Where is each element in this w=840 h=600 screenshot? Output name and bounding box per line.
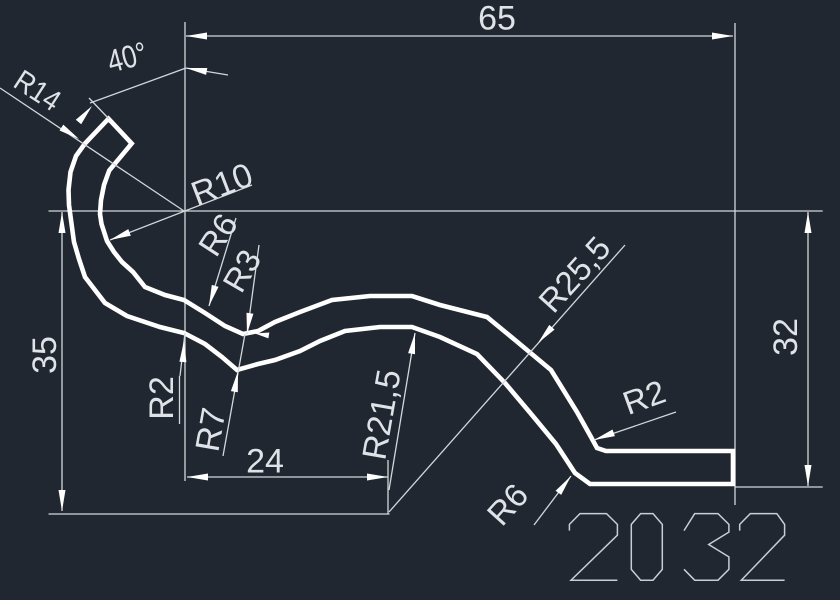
- svg-text:R7: R7: [189, 405, 234, 454]
- svg-text:32: 32: [767, 318, 805, 356]
- svg-text:R2: R2: [143, 376, 181, 419]
- svg-text:65: 65: [478, 0, 516, 38]
- svg-text:24: 24: [246, 443, 284, 481]
- svg-text:35: 35: [26, 336, 64, 374]
